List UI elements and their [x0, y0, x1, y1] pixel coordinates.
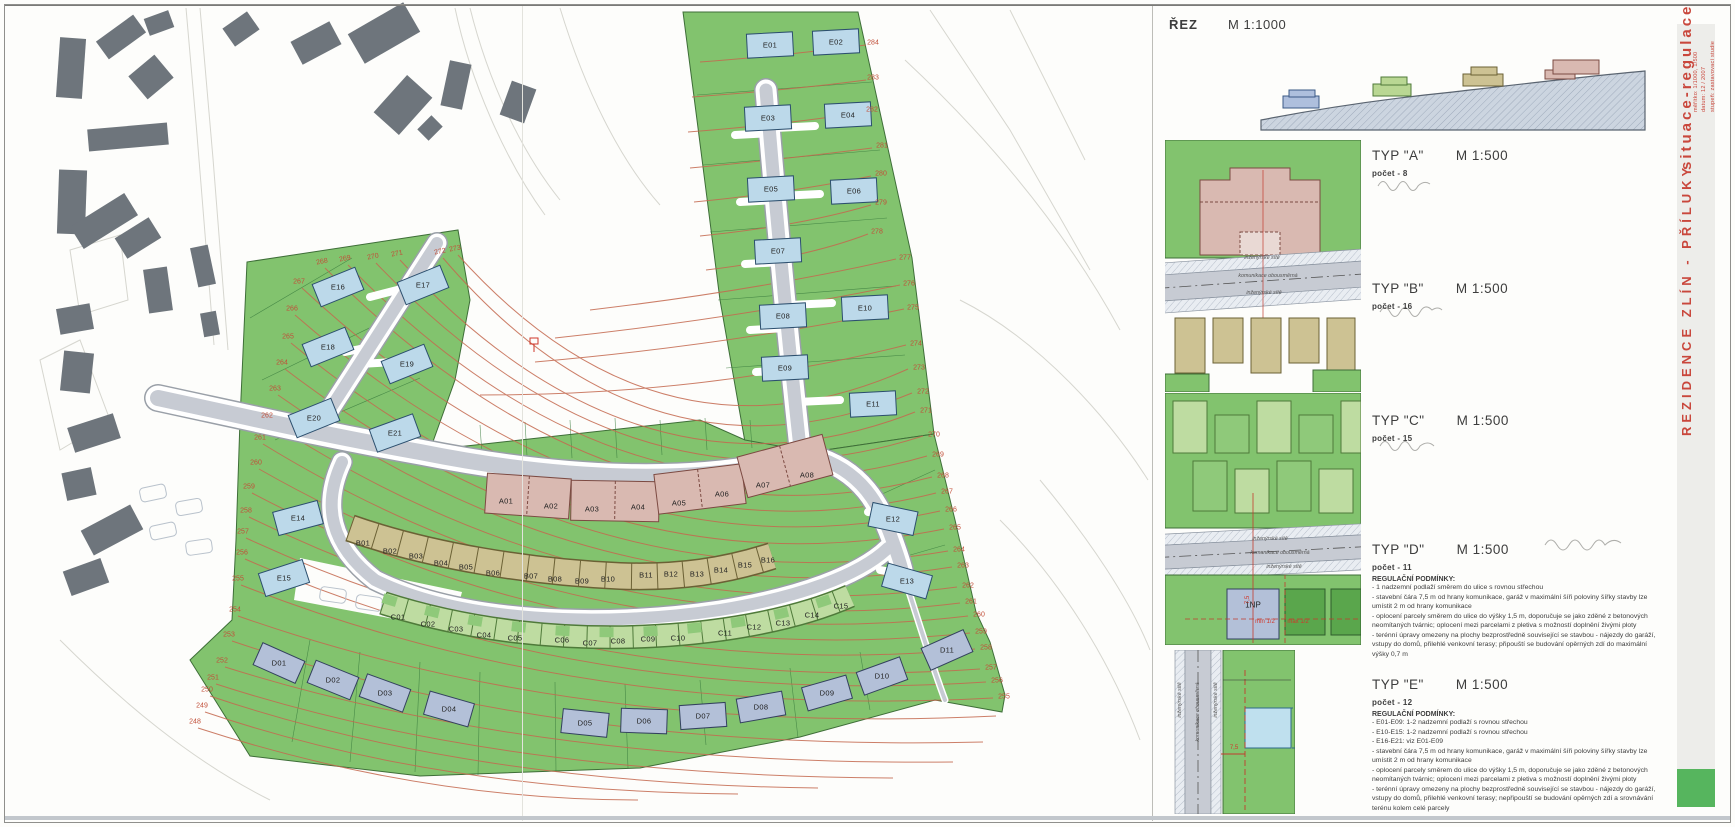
parcel-label-C15: C15 [834, 602, 849, 611]
contour-label-255-48: 255 [232, 576, 244, 583]
parcel-label-D04: D04 [442, 705, 457, 714]
site-plan-graphics [0, 0, 1155, 827]
ab-road-bottom-label: inženýrské sítě [1246, 290, 1281, 296]
contour-label-261-23: 261 [965, 599, 977, 606]
regulation-E-6: - terénní úpravy omezeny na plochy bezpr… [1372, 785, 1664, 814]
regulation-E-5: - oplocení parcely směrem do ulice do vý… [1372, 766, 1664, 785]
site-plan-map [0, 0, 1155, 827]
project-title: REZIDENCE ZLÍN - PŘÍLUKY [1679, 164, 1694, 436]
parcel-label-B08: B08 [548, 575, 562, 584]
contour-label-264-39: 264 [276, 360, 288, 367]
regulations-title-E: REGULAČNÍ PODMÍNKY: [1372, 711, 1664, 718]
regulation-D-2: - stavební čára 7,5 m od hrany komunikac… [1372, 593, 1664, 612]
parcel-label-E12: E12 [886, 515, 900, 524]
type-title-B: TYP "B" [1372, 281, 1424, 296]
parcel-label-C05: C05 [508, 634, 523, 643]
red-landmark-symbol [530, 338, 538, 352]
sheet-bottom-edge [4, 816, 1731, 820]
parcel-label-A07: A07 [756, 481, 770, 490]
parcel-label-A08: A08 [800, 471, 814, 480]
contour-label-275-9: 275 [907, 305, 919, 312]
regulation-E-4: - stavební čára 7,5 m od hrany komunikac… [1372, 747, 1664, 766]
parcel-label-B04: B04 [434, 559, 448, 568]
type-title-E: TYP "E" [1372, 677, 1424, 692]
type-count-C: počet - 15 [1372, 434, 1664, 443]
contour-label-272-12: 272 [917, 389, 929, 396]
parcel-label-C08: C08 [611, 637, 626, 646]
parcel-label-D05: D05 [578, 719, 593, 728]
cd-road-center-label: komunikace obousměrná [1250, 550, 1309, 556]
cd-road-bottom-label: inženýrské sítě [1266, 564, 1301, 570]
type-scale-B: M 1:500 [1456, 281, 1508, 296]
contour-label-251-52: 251 [207, 675, 219, 682]
contour-label-256-28: 256 [991, 678, 1003, 685]
contour-label-265-38: 265 [282, 334, 294, 341]
type-title-C: TYP "C" [1372, 413, 1425, 428]
parcel-label-B11: B11 [639, 571, 653, 580]
max-width-dim: max 1/2 [1287, 619, 1308, 625]
contour-label-282-2: 282 [866, 107, 878, 114]
contour-label-269-15: 269 [932, 452, 944, 459]
parcel-label-E18: E18 [321, 343, 335, 352]
parcel-label-A03: A03 [585, 505, 599, 514]
parcel-label-B02: B02 [383, 547, 397, 556]
parcel-label-E01: E01 [763, 41, 777, 50]
drawing-sheet: E01E02E03E04E05E06E07E08E09E10E11E12E13E… [0, 0, 1735, 827]
contour-label-254-49: 254 [229, 607, 241, 614]
contour-label-284-0: 284 [867, 40, 879, 47]
type-count-D: počet - 11 [1372, 563, 1664, 572]
ab-road-top-label: inženýrské sítě [1244, 255, 1279, 261]
parcel-label-C11: C11 [718, 629, 732, 638]
type-count-E: počet - 12 [1372, 698, 1664, 707]
parcel-label-B03: B03 [409, 552, 423, 561]
type-count-A: počet - 8 [1372, 169, 1664, 178]
fold-line [522, 6, 523, 821]
type-e-detail-drawing [1165, 650, 1295, 814]
contour-label-280-4: 280 [875, 171, 887, 178]
contour-label-250-53: 250 [201, 687, 213, 694]
parcel-label-D09: D09 [820, 689, 835, 698]
regulation-D-3: - oplocení parcely směrem do ulice do vý… [1372, 612, 1664, 631]
parcel-label-D08: D08 [754, 703, 769, 712]
parcel-label-C09: C09 [641, 635, 656, 644]
contour-label-263-21: 263 [957, 563, 969, 570]
parcel-label-C12: C12 [747, 623, 762, 632]
contour-label-257-27: 257 [985, 665, 997, 672]
parcel-label-E16: E16 [331, 283, 345, 292]
parcel-label-A04: A04 [631, 503, 645, 512]
contour-label-252-51: 252 [216, 658, 228, 665]
parcel-label-E06: E06 [847, 187, 861, 196]
parcel-label-E14: E14 [291, 514, 305, 523]
parcel-label-E02: E02 [829, 38, 843, 47]
type-scale-C: M 1:500 [1457, 413, 1509, 428]
parcel-label-D01: D01 [272, 659, 287, 668]
type-count-B: počet - 16 [1372, 302, 1664, 311]
type-scale-A: M 1:500 [1456, 148, 1508, 163]
sheet-meta: měřítko: 1/1000, 1/500 datum: 12 / 2007 … [1692, 41, 1717, 112]
parcel-label-A02: A02 [544, 502, 558, 511]
parcel-label-C07: C07 [583, 639, 598, 648]
contour-label-255-29: 255 [998, 694, 1010, 701]
panel-divider-line [1152, 6, 1153, 821]
type-scale-D: M 1:500 [1457, 542, 1509, 557]
parcel-label-D10: D10 [875, 672, 890, 681]
contour-label-264-20: 264 [953, 547, 965, 554]
meta-date: datum: 12 / 2007 [1700, 41, 1708, 112]
contour-label-277-7: 277 [899, 255, 911, 262]
parcel-label-E17: E17 [416, 281, 430, 290]
type-block-A: TYP "A"M 1:500počet - 8 [1372, 148, 1664, 178]
parcel-label-E13: E13 [900, 577, 914, 586]
parcel-label-E04: E04 [841, 111, 855, 120]
type-title-A: TYP "A" [1372, 148, 1424, 163]
parcel-label-B12: B12 [664, 570, 678, 579]
cd-road-top-label: inženýrské sítě [1252, 536, 1287, 542]
regulation-E-3: - E16-E21: viz E01-E09 [1372, 737, 1664, 747]
contour-label-265-19: 265 [949, 525, 961, 532]
parcel-label-C04: C04 [477, 631, 492, 640]
contour-label-273-11: 273 [913, 365, 925, 372]
parcel-label-E08: E08 [776, 312, 790, 321]
parcel-label-C01: C01 [391, 613, 406, 622]
parcel-label-C03: C03 [449, 625, 464, 634]
parcel-label-A06: A06 [715, 490, 729, 499]
contour-label-258-45: 258 [240, 508, 252, 515]
regulation-D-4: - terénní úpravy omezeny na plochy bezpr… [1372, 631, 1664, 660]
contour-label-262-22: 262 [962, 583, 974, 590]
min-width-dim: min 1/2 [1255, 619, 1275, 625]
contour-label-260-43: 260 [250, 460, 262, 467]
contour-label-262-41: 262 [261, 413, 273, 420]
parcel-label-B09: B09 [575, 577, 589, 586]
contour-label-263-40: 263 [269, 386, 281, 393]
parcel-label-E15: E15 [277, 574, 291, 583]
parcel-label-C10: C10 [671, 634, 686, 643]
setback-dim-d: 7,5 [1245, 596, 1251, 604]
contour-label-259-44: 259 [243, 484, 255, 491]
parcel-label-E11: E11 [866, 400, 880, 409]
parcel-label-B01: B01 [356, 539, 370, 548]
contour-label-276-8: 276 [903, 281, 915, 288]
parcel-label-D02: D02 [326, 676, 341, 685]
e-road-right-label: inženýrské sítě [1213, 682, 1219, 717]
parcel-label-E05: E05 [764, 185, 778, 194]
contour-label-260-24: 260 [973, 612, 985, 619]
parcel-label-C02: C02 [421, 620, 436, 629]
parcel-label-E07: E07 [771, 247, 785, 256]
parcel-label-B05: B05 [459, 563, 473, 572]
contour-label-278-6: 278 [871, 229, 883, 236]
contour-label-266-37: 266 [286, 306, 298, 313]
parcel-label-B06: B06 [486, 569, 500, 578]
contour-label-274-10: 274 [910, 341, 922, 348]
parcel-label-E10: E10 [858, 304, 872, 313]
parcel-label-D07: D07 [696, 712, 711, 721]
contour-label-267-36: 267 [293, 279, 305, 286]
section-scale: M 1:1000 [1228, 17, 1286, 32]
type-block-C: TYP "C"M 1:500počet - 15 [1372, 413, 1664, 443]
contour-label-283-1: 283 [867, 75, 879, 82]
meta-scale: měřítko: 1/1000, 1/500 [1692, 41, 1700, 112]
meta-stage: stupeň: zastavovací studie [1709, 41, 1717, 112]
regulations-title-D: REGULAČNÍ PODMÍNKY: [1372, 576, 1664, 583]
parcel-label-D11: D11 [940, 646, 954, 655]
parcel-label-B16: B16 [761, 556, 775, 565]
parcel-label-B10: B10 [601, 575, 615, 584]
section-title: ŘEZ [1169, 17, 1198, 32]
parcel-label-C14: C14 [805, 611, 820, 620]
contour-label-268-16: 268 [937, 473, 949, 480]
contour-label-266-18: 266 [945, 507, 957, 514]
parcel-label-E20: E20 [307, 414, 321, 423]
parcel-label-C06: C06 [555, 636, 570, 645]
type-block-B: TYP "B"M 1:500počet - 16 [1372, 281, 1664, 311]
parcel-label-D03: D03 [378, 689, 393, 698]
parcel-label-C13: C13 [776, 619, 791, 628]
parcel-label-E21: E21 [388, 429, 402, 438]
contour-label-249-54: 249 [196, 703, 208, 710]
contour-label-257-46: 257 [237, 529, 249, 536]
contour-label-279-5: 279 [875, 200, 887, 207]
parcel-label-E03: E03 [761, 114, 775, 123]
type-title-D: TYP "D" [1372, 542, 1425, 557]
parcel-label-B14: B14 [714, 566, 728, 575]
e-road-center-label: komunikace obousměrná [1195, 682, 1201, 741]
contour-label-256-47: 256 [236, 550, 248, 557]
type-cd-detail-drawing [1165, 393, 1361, 645]
parcel-label-B15: B15 [738, 561, 752, 570]
contour-label-271-13: 271 [920, 408, 932, 415]
parcel-label-E19: E19 [400, 360, 414, 369]
type-scale-E: M 1:500 [1456, 677, 1508, 692]
setback-dim-e: 7,5 [1230, 745, 1238, 751]
ab-road-center-label: komunikace obousměrná [1238, 273, 1297, 279]
parcel-label-B07: B07 [524, 572, 538, 581]
legend-green-swatch [1677, 769, 1715, 807]
parcel-label-E09: E09 [778, 364, 792, 373]
contour-label-258-26: 258 [980, 645, 992, 652]
parcel-label-A01: A01 [499, 497, 513, 506]
contour-label-270-14: 270 [928, 432, 940, 439]
contour-label-248-55: 248 [189, 719, 201, 726]
type-block-D: TYP "D"M 1:500počet - 11REGULAČNÍ PODMÍN… [1372, 542, 1664, 659]
type-block-E: TYP "E"M 1:500počet - 12REGULAČNÍ PODMÍN… [1372, 677, 1664, 813]
parcel-label-A05: A05 [672, 499, 686, 508]
contour-label-281-3: 281 [876, 143, 888, 150]
contour-label-267-17: 267 [941, 489, 953, 496]
contour-label-261-42: 261 [254, 435, 266, 442]
type-ab-detail-drawing [1165, 140, 1361, 392]
sheet-top-edge [4, 4, 1731, 6]
regulation-D-1: - 1 nadzemní podlaží směrem do ulice s r… [1372, 583, 1664, 593]
parcel-label-D06: D06 [637, 717, 652, 726]
contour-label-259-25: 259 [975, 629, 987, 636]
parcel-label-B13: B13 [690, 570, 704, 579]
section-drawing [1253, 50, 1653, 134]
contour-label-253-50: 253 [223, 632, 235, 639]
regulation-E-2: - E10-E15: 1-2 nadzemní podlaží s rovnou… [1372, 728, 1664, 738]
e-road-left-label: inženýrské sítě [1177, 682, 1183, 717]
regulation-E-1: - E01-E09: 1-2 nadzemní podlaží s rovnou… [1372, 718, 1664, 728]
